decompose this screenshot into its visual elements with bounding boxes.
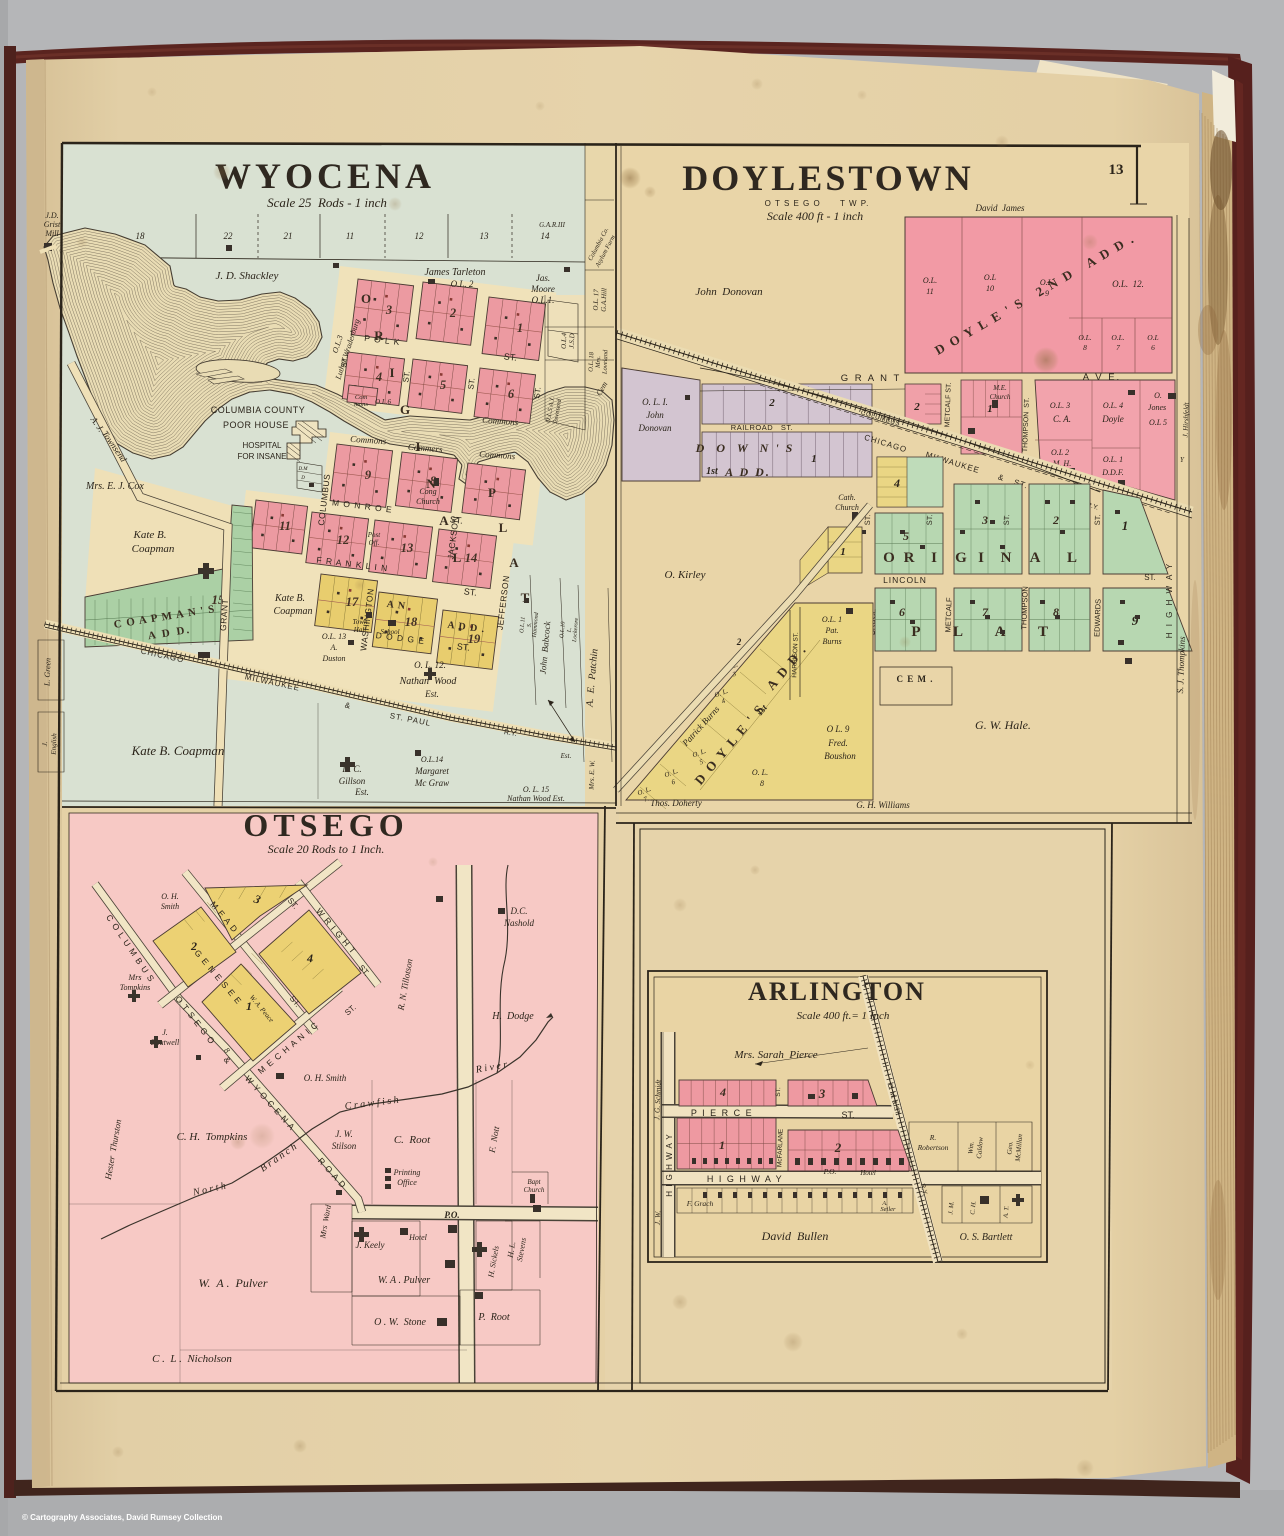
svg-text:R: R bbox=[904, 550, 915, 566]
svg-text:Loveland: Loveland bbox=[602, 349, 610, 375]
svg-text:2: 2 bbox=[449, 306, 456, 320]
svg-text:W. A . Pulver: W. A . Pulver bbox=[199, 1276, 268, 1290]
svg-text:English: English bbox=[50, 733, 59, 756]
svg-text:O.L.: O.L. bbox=[923, 276, 937, 285]
svg-text:A.: A. bbox=[330, 643, 338, 652]
svg-text:Com: Com bbox=[355, 394, 368, 401]
svg-text:R.: R. bbox=[929, 1133, 937, 1142]
svg-text:7: 7 bbox=[1116, 343, 1120, 352]
svg-text:Mill: Mill bbox=[44, 229, 59, 238]
svg-text:8: 8 bbox=[1083, 343, 1087, 352]
svg-text:Boushon: Boushon bbox=[824, 751, 856, 761]
svg-text:O. L. 15: O. L. 15 bbox=[523, 785, 549, 794]
svg-text:THOMPSON: THOMPSON bbox=[1019, 586, 1030, 630]
svg-text:O.L 5: O.L 5 bbox=[1149, 418, 1167, 427]
svg-text:Moore: Moore bbox=[530, 284, 555, 294]
svg-text:O.L. 1: O.L. 1 bbox=[822, 615, 842, 624]
svg-text:Jones: Jones bbox=[1148, 403, 1166, 412]
svg-text:14: 14 bbox=[541, 231, 551, 241]
svg-text:ST.: ST. bbox=[466, 377, 476, 390]
svg-text:Coapman: Coapman bbox=[274, 606, 313, 617]
svg-text:Mc Graw: Mc Graw bbox=[414, 778, 449, 788]
svg-text:N: N bbox=[1001, 550, 1012, 566]
svg-text:Printing: Printing bbox=[393, 1168, 421, 1177]
svg-text:LINCOLN: LINCOLN bbox=[883, 575, 927, 585]
svg-text:Hotel: Hotel bbox=[408, 1233, 428, 1242]
svg-text:13: 13 bbox=[480, 231, 490, 241]
svg-text:3: 3 bbox=[981, 513, 988, 527]
svg-text:L. Green: L. Green bbox=[42, 658, 52, 687]
svg-text:A D D.: A D D. bbox=[724, 465, 771, 479]
svg-text:O.L.14: O.L.14 bbox=[421, 755, 443, 764]
svg-text:Coapman: Coapman bbox=[132, 543, 175, 555]
svg-text:G.A.Hill: G.A.Hill bbox=[600, 288, 609, 312]
svg-text:POOR HOUSE: POOR HOUSE bbox=[223, 420, 289, 430]
svg-text:Scale 400 ft - 1 inch: Scale 400 ft - 1 inch bbox=[767, 209, 863, 223]
svg-text:O L. 9: O L. 9 bbox=[827, 724, 850, 734]
svg-text:4: 4 bbox=[719, 1085, 726, 1099]
svg-text:3: 3 bbox=[385, 303, 392, 317]
svg-text:ST.: ST. bbox=[775, 1087, 782, 1097]
svg-text:J. G. Schmidt: J. G. Schmidt bbox=[652, 1079, 662, 1121]
svg-text:COLUMBIA COUNTY: COLUMBIA COUNTY bbox=[211, 405, 306, 415]
svg-text:8: 8 bbox=[760, 779, 764, 788]
svg-text:22: 22 bbox=[224, 231, 234, 241]
svg-text:O.L.: O.L. bbox=[1111, 333, 1124, 342]
svg-text:21: 21 bbox=[284, 231, 293, 241]
svg-text:mons: mons bbox=[354, 401, 368, 408]
svg-text:O. H. Smith: O. H. Smith bbox=[304, 1073, 347, 1083]
svg-text:I: I bbox=[931, 550, 937, 566]
svg-text:WYOCENA: WYOCENA bbox=[215, 156, 435, 196]
svg-text:10: 10 bbox=[986, 284, 994, 293]
svg-text:A: A bbox=[509, 555, 519, 570]
svg-text:ST.: ST. bbox=[401, 370, 411, 383]
svg-text:Grist: Grist bbox=[44, 220, 61, 229]
svg-text:D.D.F.: D.D.F. bbox=[1101, 468, 1123, 477]
svg-text:David Bullen: David Bullen bbox=[761, 1229, 829, 1243]
svg-text:A: A bbox=[1030, 550, 1041, 566]
svg-text:FOR INSANE: FOR INSANE bbox=[238, 452, 287, 461]
svg-text:Church: Church bbox=[990, 393, 1011, 401]
svg-text:O.L. 13: O.L. 13 bbox=[322, 632, 346, 641]
svg-text:R: R bbox=[374, 328, 384, 343]
svg-text:C . L . Nicholson: C . L . Nicholson bbox=[152, 1353, 232, 1365]
svg-text:F. Grach: F. Grach bbox=[686, 1199, 714, 1208]
svg-text:O.L.6: O.L.6 bbox=[375, 398, 391, 406]
svg-text:Gillson: Gillson bbox=[339, 776, 366, 786]
svg-text:D.M: D.M bbox=[297, 467, 308, 472]
svg-text:C. H.: C. H. bbox=[969, 1200, 977, 1215]
svg-text:O. H.: O. H. bbox=[161, 892, 179, 901]
svg-text:D.C.: D.C. bbox=[509, 906, 527, 916]
svg-text:J.D.: J.D. bbox=[45, 211, 58, 220]
svg-text:O . W. Stone: O . W. Stone bbox=[374, 1317, 426, 1328]
svg-text:6: 6 bbox=[508, 387, 515, 401]
svg-text:Nashold: Nashold bbox=[503, 918, 535, 928]
svg-text:11: 11 bbox=[346, 231, 354, 241]
svg-text:G.A.R.III: G.A.R.III bbox=[539, 221, 566, 229]
svg-text:Church: Church bbox=[524, 1186, 545, 1194]
svg-text:A N: A N bbox=[386, 599, 407, 612]
svg-text:P: P bbox=[488, 485, 496, 500]
svg-text:DOYLESTOWN: DOYLESTOWN bbox=[682, 158, 973, 198]
svg-text:O: O bbox=[883, 550, 895, 566]
svg-text:G: G bbox=[955, 550, 967, 566]
svg-text:L: L bbox=[953, 624, 963, 640]
svg-text:Nathan Wood Est.: Nathan Wood Est. bbox=[506, 794, 565, 803]
svg-text:2: 2 bbox=[768, 397, 775, 409]
svg-text:2: 2 bbox=[736, 637, 742, 647]
svg-text:O.L: O.L bbox=[984, 273, 997, 282]
svg-text:14: 14 bbox=[465, 551, 478, 565]
svg-text:W. A . Pulver: W. A . Pulver bbox=[378, 1275, 430, 1286]
svg-text:Bapt: Bapt bbox=[527, 1178, 541, 1186]
svg-text:G. H. Williams: G. H. Williams bbox=[856, 800, 910, 810]
svg-text:J. W.: J. W. bbox=[653, 1210, 663, 1225]
svg-text:A: A bbox=[439, 513, 449, 528]
svg-text:1: 1 bbox=[840, 546, 846, 558]
svg-text:I: I bbox=[389, 365, 394, 380]
svg-text:OTSEGO: OTSEGO bbox=[243, 807, 408, 843]
svg-text:J. W.: J. W. bbox=[335, 1129, 352, 1139]
svg-text:Seiler: Seiler bbox=[880, 1206, 896, 1213]
svg-text:Nathan Wood: Nathan Wood bbox=[399, 676, 458, 687]
svg-text:H I G H W A Y: H I G H W A Y bbox=[707, 1174, 783, 1184]
svg-text:Stilson: Stilson bbox=[332, 1141, 357, 1151]
svg-text:John Donovan: John Donovan bbox=[695, 286, 763, 298]
svg-text:13: 13 bbox=[1109, 162, 1124, 178]
svg-text:5: 5 bbox=[440, 378, 446, 392]
svg-text:RAILROAD ST.: RAILROAD ST. bbox=[731, 423, 793, 432]
svg-text:Hotel: Hotel bbox=[859, 1169, 876, 1177]
svg-text:9: 9 bbox=[1045, 289, 1049, 298]
svg-text:4: 4 bbox=[375, 370, 382, 384]
svg-text:A V E.: A V E. bbox=[1083, 372, 1121, 383]
svg-text:Mrs. E. W.: Mrs. E. W. bbox=[587, 760, 596, 791]
svg-text:Burns: Burns bbox=[822, 637, 841, 646]
svg-text:ST.: ST. bbox=[925, 514, 934, 525]
svg-text:P: P bbox=[911, 624, 920, 640]
svg-text:1: 1 bbox=[1122, 518, 1129, 533]
svg-text:1: 1 bbox=[987, 403, 993, 415]
svg-text:Church: Church bbox=[416, 497, 440, 506]
svg-text:ST.: ST. bbox=[1093, 514, 1102, 525]
svg-text:2: 2 bbox=[1052, 513, 1059, 527]
svg-text:Cath.: Cath. bbox=[838, 493, 856, 502]
svg-text:ST.: ST. bbox=[1002, 514, 1011, 525]
svg-text:School: School bbox=[380, 628, 399, 636]
svg-text:O.L.1.: O.L.1. bbox=[532, 295, 555, 305]
svg-text:L: L bbox=[1067, 550, 1077, 566]
svg-text:Geo.: Geo. bbox=[1005, 1141, 1014, 1155]
svg-text:J.S.D: J.S.D bbox=[568, 333, 577, 348]
svg-text:11: 11 bbox=[926, 287, 933, 296]
svg-text:Robertson: Robertson bbox=[917, 1143, 949, 1152]
svg-text:James Tarleton: James Tarleton bbox=[424, 267, 485, 278]
svg-text:2: 2 bbox=[913, 401, 920, 413]
svg-text:Scale 20 Rods to 1 Inch.: Scale 20 Rods to 1 Inch. bbox=[268, 842, 385, 856]
svg-text:J.: J. bbox=[41, 741, 49, 746]
svg-text:Town: Town bbox=[353, 618, 368, 626]
svg-text:P.O.: P.O. bbox=[444, 1210, 459, 1220]
svg-text:Donovan: Donovan bbox=[638, 423, 672, 433]
svg-text:ST.: ST. bbox=[532, 386, 542, 399]
svg-text:O.L. 12.: O.L. 12. bbox=[1112, 279, 1144, 289]
svg-text:J. D. Shackley: J. D. Shackley bbox=[216, 270, 279, 282]
svg-text:Post: Post bbox=[367, 531, 382, 539]
svg-text:Doyle: Doyle bbox=[1101, 414, 1124, 424]
svg-text:G R A N T: G R A N T bbox=[841, 373, 902, 384]
svg-text:6: 6 bbox=[1151, 343, 1155, 352]
svg-text:C. Root: C. Root bbox=[394, 1134, 431, 1146]
svg-text:O.L.: O.L. bbox=[1040, 278, 1054, 287]
svg-text:Jas.: Jas. bbox=[536, 273, 550, 283]
svg-text:Scale 400 ft.= 1 Inch: Scale 400 ft.= 1 Inch bbox=[797, 1010, 890, 1022]
svg-text:P.O.: P.O. bbox=[823, 1167, 837, 1176]
svg-text:1st: 1st bbox=[706, 466, 719, 477]
svg-text:4: 4 bbox=[893, 476, 900, 490]
svg-text:P. Root: P. Root bbox=[477, 1312, 509, 1323]
svg-text:John: John bbox=[646, 410, 664, 420]
svg-text:18: 18 bbox=[136, 231, 146, 241]
svg-text:O: O bbox=[361, 291, 371, 306]
svg-text:ST.: ST. bbox=[339, 355, 349, 368]
svg-text:Hall: Hall bbox=[353, 626, 367, 634]
svg-text:A. T.: A. T. bbox=[1002, 1205, 1010, 1219]
svg-text:Mrs: Mrs bbox=[128, 973, 142, 982]
svg-text:David James: David James bbox=[975, 203, 1025, 213]
svg-text:4: 4 bbox=[306, 951, 313, 965]
svg-text:Duston: Duston bbox=[321, 654, 345, 663]
svg-text:17: 17 bbox=[346, 595, 359, 609]
svg-text:Scale 25 Rods - 1 inch: Scale 25 Rods - 1 inch bbox=[267, 195, 387, 210]
svg-text:O. L.: O. L. bbox=[752, 768, 768, 777]
svg-text:© Cartography Associates, Davi: © Cartography Associates, David Rumsey C… bbox=[22, 1513, 222, 1522]
svg-text:O. L. I.: O. L. I. bbox=[642, 397, 668, 407]
svg-text:D O W N ' S: D O W N ' S bbox=[695, 441, 795, 455]
svg-text:O.L. 1: O.L. 1 bbox=[1103, 455, 1123, 464]
svg-text:Fred.: Fred. bbox=[827, 738, 847, 748]
svg-text:T: T bbox=[1038, 624, 1048, 640]
svg-text:13: 13 bbox=[401, 541, 414, 555]
svg-text:Mrs. Sarah Pierce: Mrs. Sarah Pierce bbox=[733, 1049, 817, 1061]
svg-text:M.E.: M.E. bbox=[992, 384, 1007, 392]
svg-text:O.L.: O.L. bbox=[1078, 333, 1091, 342]
svg-text:D: D bbox=[300, 476, 305, 481]
svg-text:O. Kirley: O. Kirley bbox=[665, 569, 706, 581]
svg-text:P I E R C E: P I E R C E bbox=[691, 1108, 753, 1118]
svg-text:O.: O. bbox=[1154, 391, 1162, 400]
svg-text:ST.: ST. bbox=[463, 586, 477, 598]
svg-text:Off.: Off. bbox=[369, 539, 380, 547]
svg-text:12: 12 bbox=[337, 533, 350, 547]
svg-text:ST.: ST. bbox=[841, 1110, 854, 1120]
svg-text:C. A.: C. A. bbox=[1053, 414, 1071, 424]
svg-text:O.L. 2: O.L. 2 bbox=[451, 279, 474, 289]
svg-text:Kate B. Coapman: Kate B. Coapman bbox=[131, 743, 225, 758]
svg-text:O. S. Bartlett: O. S. Bartlett bbox=[960, 1232, 1013, 1243]
svg-text:H I G H W A Y: H I G H W A Y bbox=[1165, 562, 1174, 639]
svg-text:O.L. 4: O.L. 4 bbox=[1103, 401, 1123, 410]
svg-text:O.L 2: O.L 2 bbox=[1051, 448, 1069, 457]
svg-text:1: 1 bbox=[719, 1138, 725, 1152]
svg-text:G. W. Hale.: G. W. Hale. bbox=[975, 718, 1031, 732]
svg-text:O.L: O.L bbox=[1147, 333, 1158, 342]
svg-text:11: 11 bbox=[279, 519, 291, 533]
svg-text:2: 2 bbox=[834, 1140, 842, 1155]
svg-text:1: 1 bbox=[517, 321, 523, 335]
svg-text:O T S E G O T W P.: O T S E G O T W P. bbox=[765, 199, 870, 208]
svg-text:J.: J. bbox=[162, 1028, 168, 1037]
svg-text:Est.: Est. bbox=[424, 689, 439, 699]
svg-text:12: 12 bbox=[415, 231, 425, 241]
svg-text:ST.: ST. bbox=[1144, 573, 1156, 582]
svg-text:Kate B.: Kate B. bbox=[274, 593, 305, 604]
svg-text:Margaret: Margaret bbox=[414, 766, 449, 776]
svg-text:Thos. Doherty: Thos. Doherty bbox=[650, 798, 702, 808]
svg-text:Est.: Est. bbox=[560, 752, 572, 760]
svg-text:Est.: Est. bbox=[354, 787, 369, 797]
svg-text:Wm.: Wm. bbox=[966, 1141, 975, 1155]
svg-text:C E M .: C E M . bbox=[897, 674, 934, 684]
svg-text:L: L bbox=[453, 550, 462, 565]
svg-text:ARLINGTON: ARLINGTON bbox=[748, 977, 926, 1006]
svg-text:3: 3 bbox=[818, 1086, 826, 1101]
svg-text:H. Dodge: H. Dodge bbox=[491, 1011, 534, 1022]
svg-text:1: 1 bbox=[811, 453, 817, 465]
svg-text:METCALF: METCALF bbox=[943, 597, 953, 633]
svg-text:G: G bbox=[400, 402, 410, 417]
svg-text:McFARLANE: McFARLANE bbox=[776, 1128, 784, 1167]
svg-text:EDWARDS: EDWARDS bbox=[1092, 599, 1102, 637]
svg-text:J. M.: J. M. bbox=[947, 1201, 955, 1215]
svg-text:Kate B.: Kate B. bbox=[133, 529, 167, 541]
svg-text:HOSPITAL: HOSPITAL bbox=[243, 441, 283, 450]
svg-text:Mrs. E. J. Cox: Mrs. E. J. Cox bbox=[85, 481, 144, 492]
svg-text:Office: Office bbox=[397, 1178, 417, 1187]
svg-text:9: 9 bbox=[365, 468, 372, 482]
svg-text:ST.: ST. bbox=[503, 351, 517, 363]
svg-text:ST.: ST. bbox=[456, 641, 470, 653]
svg-text:Smith: Smith bbox=[161, 902, 179, 911]
svg-text:Pat.: Pat. bbox=[824, 626, 838, 635]
svg-text:18: 18 bbox=[405, 615, 418, 629]
svg-text:6: 6 bbox=[899, 605, 905, 619]
svg-text:Church: Church bbox=[835, 503, 859, 512]
svg-text:O.L. 3: O.L. 3 bbox=[1050, 401, 1070, 410]
svg-text:H I G H W A Y: H I G H W A Y bbox=[665, 1133, 674, 1197]
svg-text:I: I bbox=[978, 550, 984, 566]
svg-text:L: L bbox=[499, 520, 508, 535]
svg-text:Cong: Cong bbox=[419, 487, 436, 496]
